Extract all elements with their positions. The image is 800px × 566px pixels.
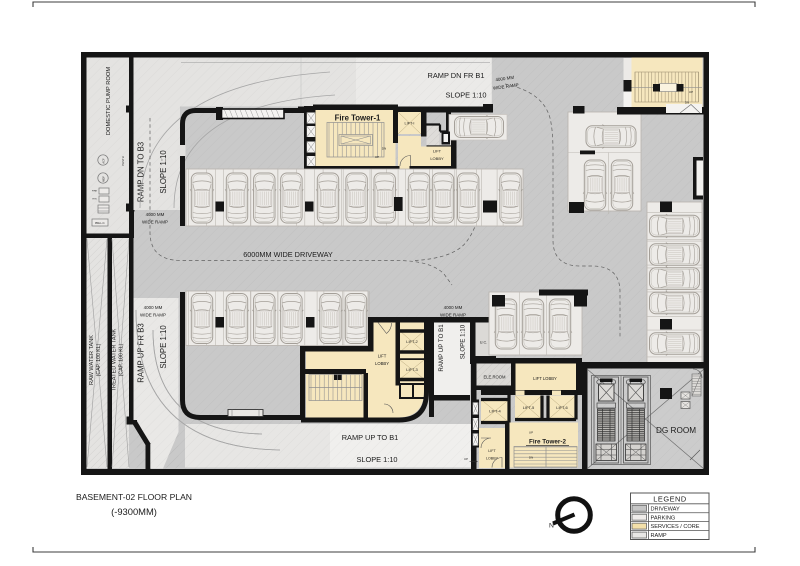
svg-text:DG ROOM: DG ROOM — [656, 426, 696, 435]
svg-text:WIDE RAMP: WIDE RAMP — [142, 220, 168, 225]
svg-text:4000 MM: 4000 MM — [144, 305, 163, 310]
svg-text:LIFT-I: LIFT-I — [405, 121, 415, 125]
svg-text:RAMP DN FR B1: RAMP DN FR B1 — [428, 71, 485, 80]
svg-text:UP: UP — [464, 457, 468, 461]
svg-text:LIFT-6: LIFT-6 — [556, 405, 568, 410]
svg-text:N: N — [549, 523, 554, 530]
svg-text:TREATED WATER TANK: TREATED WATER TANK — [112, 328, 118, 391]
svg-text:UP: UP — [375, 155, 379, 159]
svg-text:SERVICES / CORE: SERVICES / CORE — [651, 524, 700, 530]
svg-text:FIRE: FIRE — [92, 191, 98, 193]
svg-text:UP: UP — [689, 90, 693, 94]
svg-text:(-9300MM): (-9300MM) — [111, 506, 157, 517]
svg-text:DRIVEWAY: DRIVEWAY — [651, 506, 680, 512]
svg-text:ELE.ROOM: ELE.ROOM — [483, 375, 506, 380]
svg-text:6000MM WIDE DRIVEWAY: 6000MM WIDE DRIVEWAY — [243, 250, 333, 259]
svg-text:PRE.L.O.: PRE.L.O. — [95, 222, 105, 225]
svg-text:LIFT: LIFT — [378, 354, 387, 359]
svg-text:PARKING: PARKING — [651, 515, 676, 521]
svg-text:LIFT-2: LIFT-2 — [406, 339, 418, 344]
svg-text:LOBBY: LOBBY — [375, 361, 389, 366]
svg-text:RAMP UP TO B1: RAMP UP TO B1 — [342, 433, 399, 442]
svg-text:RAMP UP TO B1: RAMP UP TO B1 — [438, 324, 445, 372]
svg-text:LIFT-3: LIFT-3 — [406, 367, 418, 372]
svg-text:WIDE RAMP: WIDE RAMP — [140, 313, 166, 318]
svg-text:LIFT: LIFT — [433, 149, 442, 154]
svg-text:DN: DN — [685, 101, 689, 105]
svg-text:LIFT LOBBY: LIFT LOBBY — [533, 376, 557, 381]
svg-text:Fire Tower-2: Fire Tower-2 — [529, 439, 566, 446]
svg-text:LIFT-5: LIFT-5 — [523, 405, 535, 410]
svg-text:MDF: MDF — [102, 176, 106, 182]
svg-text:LEGEND: LEGEND — [653, 494, 686, 503]
svg-text:UP: UP — [350, 369, 354, 373]
svg-text:LOBBY: LOBBY — [430, 156, 444, 161]
svg-text:RAMP UP FR B3: RAMP UP FR B3 — [137, 323, 146, 383]
svg-text:SLOPE 1:10: SLOPE 1:10 — [445, 91, 486, 100]
svg-text:DOMESTIC PUMP ROOM: DOMESTIC PUMP ROOM — [106, 67, 112, 136]
svg-text:HYD: HYD — [92, 199, 97, 201]
svg-text:4000 MM: 4000 MM — [146, 212, 165, 217]
svg-text:WIDE RAMP: WIDE RAMP — [440, 313, 466, 318]
svg-text:SLOPE 1:10: SLOPE 1:10 — [356, 455, 397, 464]
svg-text:4000 MM: 4000 MM — [444, 305, 463, 310]
svg-text:DN: DN — [529, 456, 533, 460]
svg-text:UP: UP — [529, 431, 533, 435]
svg-text:RAW WATER TANK: RAW WATER TANK — [89, 335, 95, 385]
svg-text:(CAP. 100 KL): (CAP. 100 KL) — [119, 343, 125, 376]
svg-text:DN: DN — [320, 369, 324, 373]
svg-text:LOBBY: LOBBY — [486, 457, 499, 461]
svg-text:(CAP. 100 KL): (CAP. 100 KL) — [96, 343, 102, 376]
svg-text:SLOPE 1:10: SLOPE 1:10 — [159, 325, 168, 369]
svg-text:ACF: ACF — [102, 158, 106, 164]
svg-text:SLOPE 1:10: SLOPE 1:10 — [460, 324, 467, 359]
svg-text:RAMP: RAMP — [651, 533, 667, 539]
svg-text:LIFT-4: LIFT-4 — [489, 409, 501, 414]
svg-text:SLOPE 1:10: SLOPE 1:10 — [159, 150, 168, 194]
svg-text:DN: DN — [382, 147, 386, 151]
svg-text:U.C.: U.C. — [480, 341, 488, 345]
svg-text:LIFT: LIFT — [488, 449, 496, 453]
svg-text:BASEMENT-02 FLOOR PLAN: BASEMENT-02 FLOOR PLAN — [76, 492, 192, 502]
svg-text:PLINTH: PLINTH — [121, 156, 125, 165]
svg-text:Fire Tower-1: Fire Tower-1 — [335, 114, 381, 123]
